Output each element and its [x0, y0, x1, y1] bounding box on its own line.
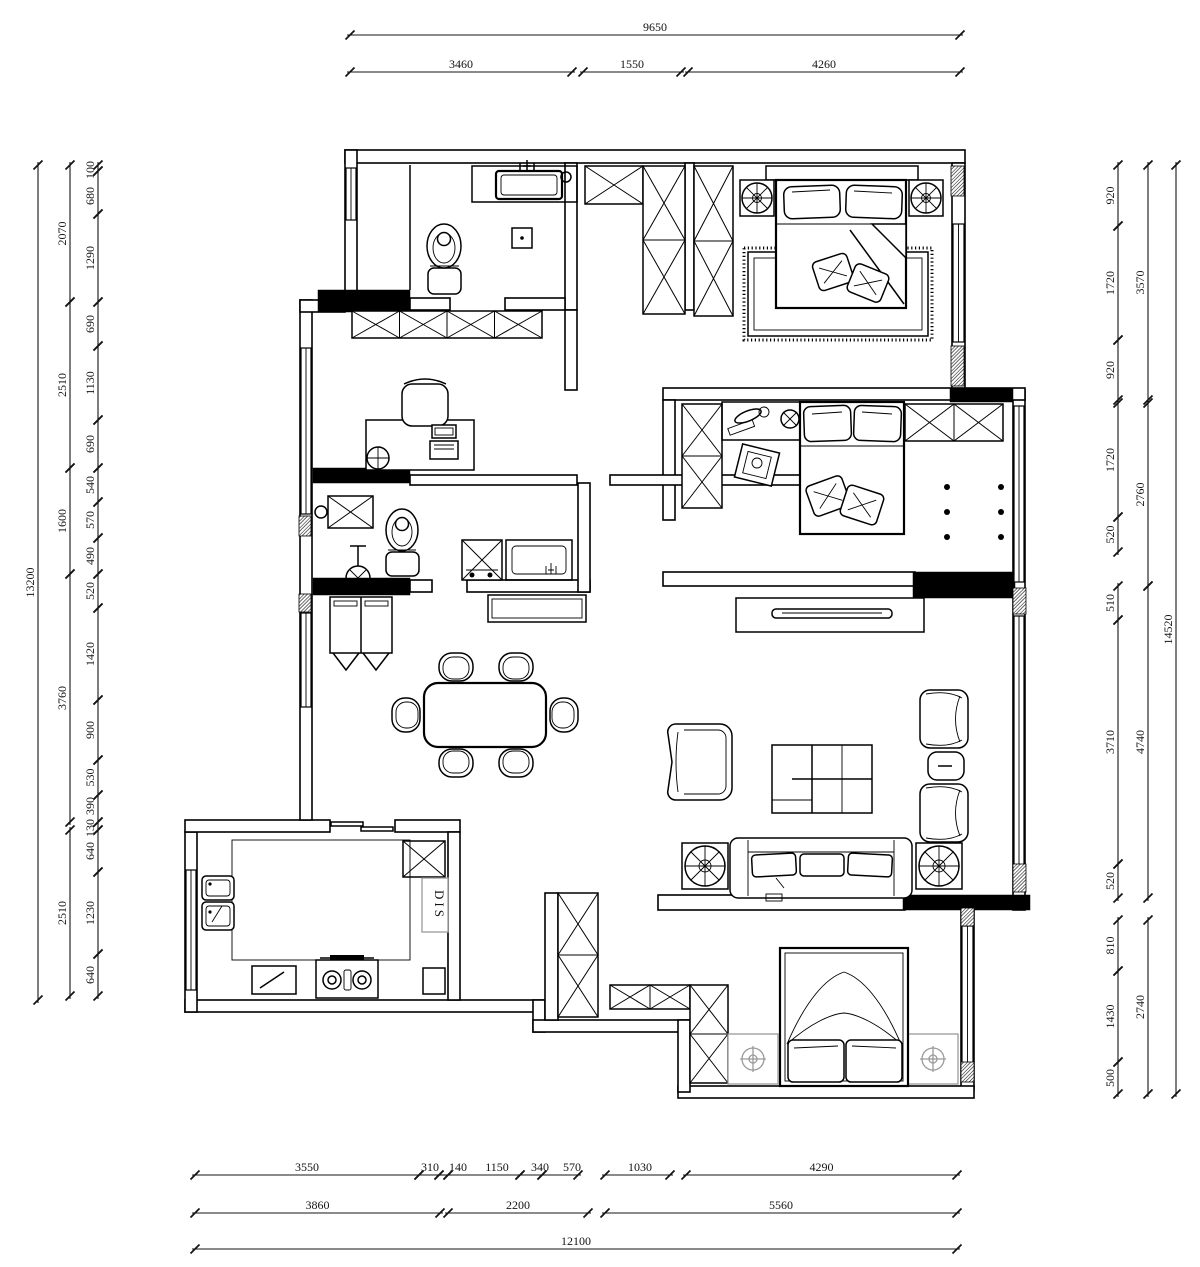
sideboard: [488, 595, 586, 622]
wall: [448, 832, 460, 1000]
wall: [467, 580, 590, 592]
dimension-label: 530: [83, 769, 97, 787]
dimension-label: 2070: [55, 222, 69, 246]
x-cabinet: [610, 985, 690, 1009]
dimension-label: 1430: [1103, 1005, 1117, 1029]
dining-area: [330, 595, 586, 777]
dimension-label: 1030: [628, 1160, 652, 1174]
window: [301, 348, 311, 514]
wall: [185, 1000, 543, 1012]
dimension-label: 1720: [1103, 448, 1117, 472]
dimension-chain: 3570276047402740: [1133, 161, 1153, 1099]
dimension-chain: 3550310140115034057010304290: [191, 1160, 962, 1180]
toilet: [427, 224, 461, 294]
wall: [410, 475, 577, 485]
dimension-label: 920: [1103, 361, 1117, 379]
wall: [685, 163, 694, 310]
dimension-label: 640: [83, 966, 97, 984]
dimension-chain: 346015504260: [346, 57, 965, 77]
dimension-label: 390: [83, 797, 97, 815]
wall: [663, 400, 675, 520]
toilet: [386, 509, 419, 576]
sink-small: [315, 506, 327, 518]
wall: [565, 310, 577, 390]
sliding-door: [331, 822, 393, 831]
x-cabinet: [694, 166, 733, 316]
structural-wall: [318, 290, 410, 312]
double-bed: [780, 948, 908, 1086]
curtain-box: [951, 346, 964, 386]
dimension-label: 1420: [83, 642, 97, 666]
nightstand-left: [728, 1034, 778, 1084]
dimension-label: 4260: [812, 57, 836, 71]
dimension-annotations: 9650346015504260355031014011503405701030…: [23, 20, 1181, 1254]
dimension-chain: 12100: [191, 1234, 962, 1254]
window: [186, 870, 196, 990]
dimension-chain: 386022005560: [191, 1198, 962, 1218]
headboard: [766, 166, 918, 180]
window: [1014, 616, 1024, 890]
dishwasher-label: DIS: [432, 890, 447, 920]
window: [953, 224, 964, 342]
dimension-label: 2760: [1133, 483, 1147, 507]
wall: [578, 483, 590, 592]
dimension-label: 4290: [810, 1160, 834, 1174]
dimension-label: 540: [83, 476, 97, 494]
window: [1014, 406, 1024, 582]
wall: [678, 1020, 690, 1092]
dimension-label: 13200: [23, 568, 37, 598]
dimension-label: 310: [421, 1160, 439, 1174]
nightstand-right: [908, 1034, 958, 1084]
coffee-table: [772, 745, 872, 813]
dimension-label: 640: [83, 842, 97, 860]
dimension-label: 1550: [620, 57, 644, 71]
x-cabinet: [403, 841, 445, 877]
side-table: [928, 752, 964, 780]
dimension-label: 690: [83, 315, 97, 333]
dimension-label: 3710: [1103, 730, 1117, 754]
vanity: [506, 540, 572, 580]
wall: [533, 1020, 690, 1032]
armchair-right-2: [920, 784, 968, 842]
dimension-chain: 9650: [346, 20, 965, 40]
dimension-label: 4740: [1133, 730, 1147, 754]
armchair-left: [668, 724, 732, 800]
bathroom-top: [410, 160, 577, 294]
double-bed: [776, 180, 906, 308]
x-cabinet: [682, 404, 722, 508]
curtain-box: [299, 594, 311, 612]
base-cabinet: [423, 968, 445, 994]
dimension-label: 1720: [1103, 271, 1117, 295]
dishwasher: DIS: [422, 878, 448, 932]
floor-plan-page: DIS: [0, 0, 1200, 1267]
wall: [663, 572, 915, 586]
x-cabinet: [585, 166, 643, 204]
desk-chair: [402, 379, 448, 426]
structural-wall: [313, 578, 410, 595]
x-cabinet: [905, 404, 1003, 441]
dimension-label: 690: [83, 435, 97, 453]
armchair-right-1: [920, 690, 968, 748]
living-room: [668, 598, 968, 901]
wall: [678, 1086, 974, 1098]
dimension-label: 1290: [83, 246, 97, 270]
dimension-label: 520: [83, 582, 97, 600]
wall: [185, 820, 330, 832]
dimension-label: 2200: [506, 1198, 530, 1212]
wall: [395, 820, 460, 832]
dimension-chain: 14520: [1161, 161, 1181, 1099]
dimension-label: 2510: [55, 901, 69, 925]
dining-table: [424, 683, 546, 747]
x-cabinet: [328, 496, 373, 528]
dimension-label: 520: [1103, 526, 1117, 544]
floor-plan: DIS: [0, 0, 1200, 1267]
dimension-label: 100: [83, 161, 97, 179]
wall: [565, 163, 577, 310]
wall: [410, 580, 432, 592]
curtain-box: [951, 166, 964, 196]
window: [346, 168, 356, 220]
fridge: [330, 597, 392, 670]
dimension-chain: 9201720920172052051037105208101430500: [1103, 161, 1123, 1099]
dimension-label: 570: [83, 511, 97, 529]
dimension-label: 3460: [449, 57, 473, 71]
x-cabinet: [558, 893, 598, 1017]
wall-dots: [944, 484, 1004, 540]
x-cabinet: [462, 540, 502, 580]
structural-wall: [913, 572, 1015, 598]
dimension-label: 510: [1103, 594, 1117, 612]
wall-socket-icon: [367, 447, 389, 469]
curtain-box: [961, 908, 974, 926]
bedroom-master: [740, 166, 943, 340]
dimension-label: 9650: [643, 20, 667, 34]
sofa: [730, 838, 912, 901]
bedroom-third: [728, 948, 958, 1086]
dimension-label: 500: [1103, 1069, 1117, 1087]
dimension-label: 14520: [1161, 615, 1175, 645]
drain-dot: [520, 236, 524, 240]
curtain-box: [1013, 588, 1026, 614]
dimension-label: 1150: [485, 1160, 509, 1174]
x-cabinet: [643, 166, 685, 314]
wall: [410, 298, 450, 310]
dimension-label: 520: [1103, 872, 1117, 890]
curtain-box: [1013, 864, 1026, 892]
x-cabinet: [690, 985, 728, 1083]
dimension-label: 490: [83, 547, 97, 565]
dimension-chain: 13200: [23, 161, 43, 1005]
gas-stove: [316, 955, 378, 998]
wall: [345, 150, 965, 163]
dimension-label: 5560: [769, 1198, 793, 1212]
dimension-label: 2510: [55, 373, 69, 397]
dimension-label: 3860: [306, 1198, 330, 1212]
kitchen-sink: [202, 876, 234, 930]
dresser: [722, 402, 802, 440]
window: [301, 613, 311, 707]
dimension-label: 1230: [83, 901, 97, 925]
dimension-label: 12100: [561, 1234, 591, 1248]
cutting-board: [252, 966, 296, 994]
wall: [505, 298, 565, 310]
plant-right: [916, 843, 962, 889]
computer: [430, 425, 458, 459]
plant-left: [682, 843, 728, 889]
dimension-label: 810: [1103, 937, 1117, 955]
dimension-label: 920: [1103, 187, 1117, 205]
x-cabinet: [352, 311, 542, 338]
vent-icon: [781, 410, 799, 428]
study: [366, 379, 474, 470]
wall: [545, 893, 558, 1020]
dimension-label: 3570: [1133, 271, 1147, 295]
counter-edge: [232, 840, 410, 960]
dimension-label: 1600: [55, 509, 69, 533]
tv-console: [736, 598, 924, 632]
dimension-label: 900: [83, 721, 97, 739]
dimension-label: 570: [563, 1160, 581, 1174]
window: [962, 926, 973, 1080]
dimension-label: 3550: [295, 1160, 319, 1174]
dimension-chain: 20702510160037602510: [55, 161, 75, 1001]
dimension-label: 680: [83, 187, 97, 205]
curtain-box: [961, 1062, 974, 1082]
curtain-box: [299, 516, 311, 536]
dimension-label: 2740: [1133, 995, 1147, 1019]
dimension-label: 3760: [55, 686, 69, 710]
dimension-label: 1130: [83, 371, 97, 395]
structural-wall: [950, 388, 1013, 402]
dimension-chain: 1006801290690113069054057049052014209005…: [83, 161, 103, 1001]
